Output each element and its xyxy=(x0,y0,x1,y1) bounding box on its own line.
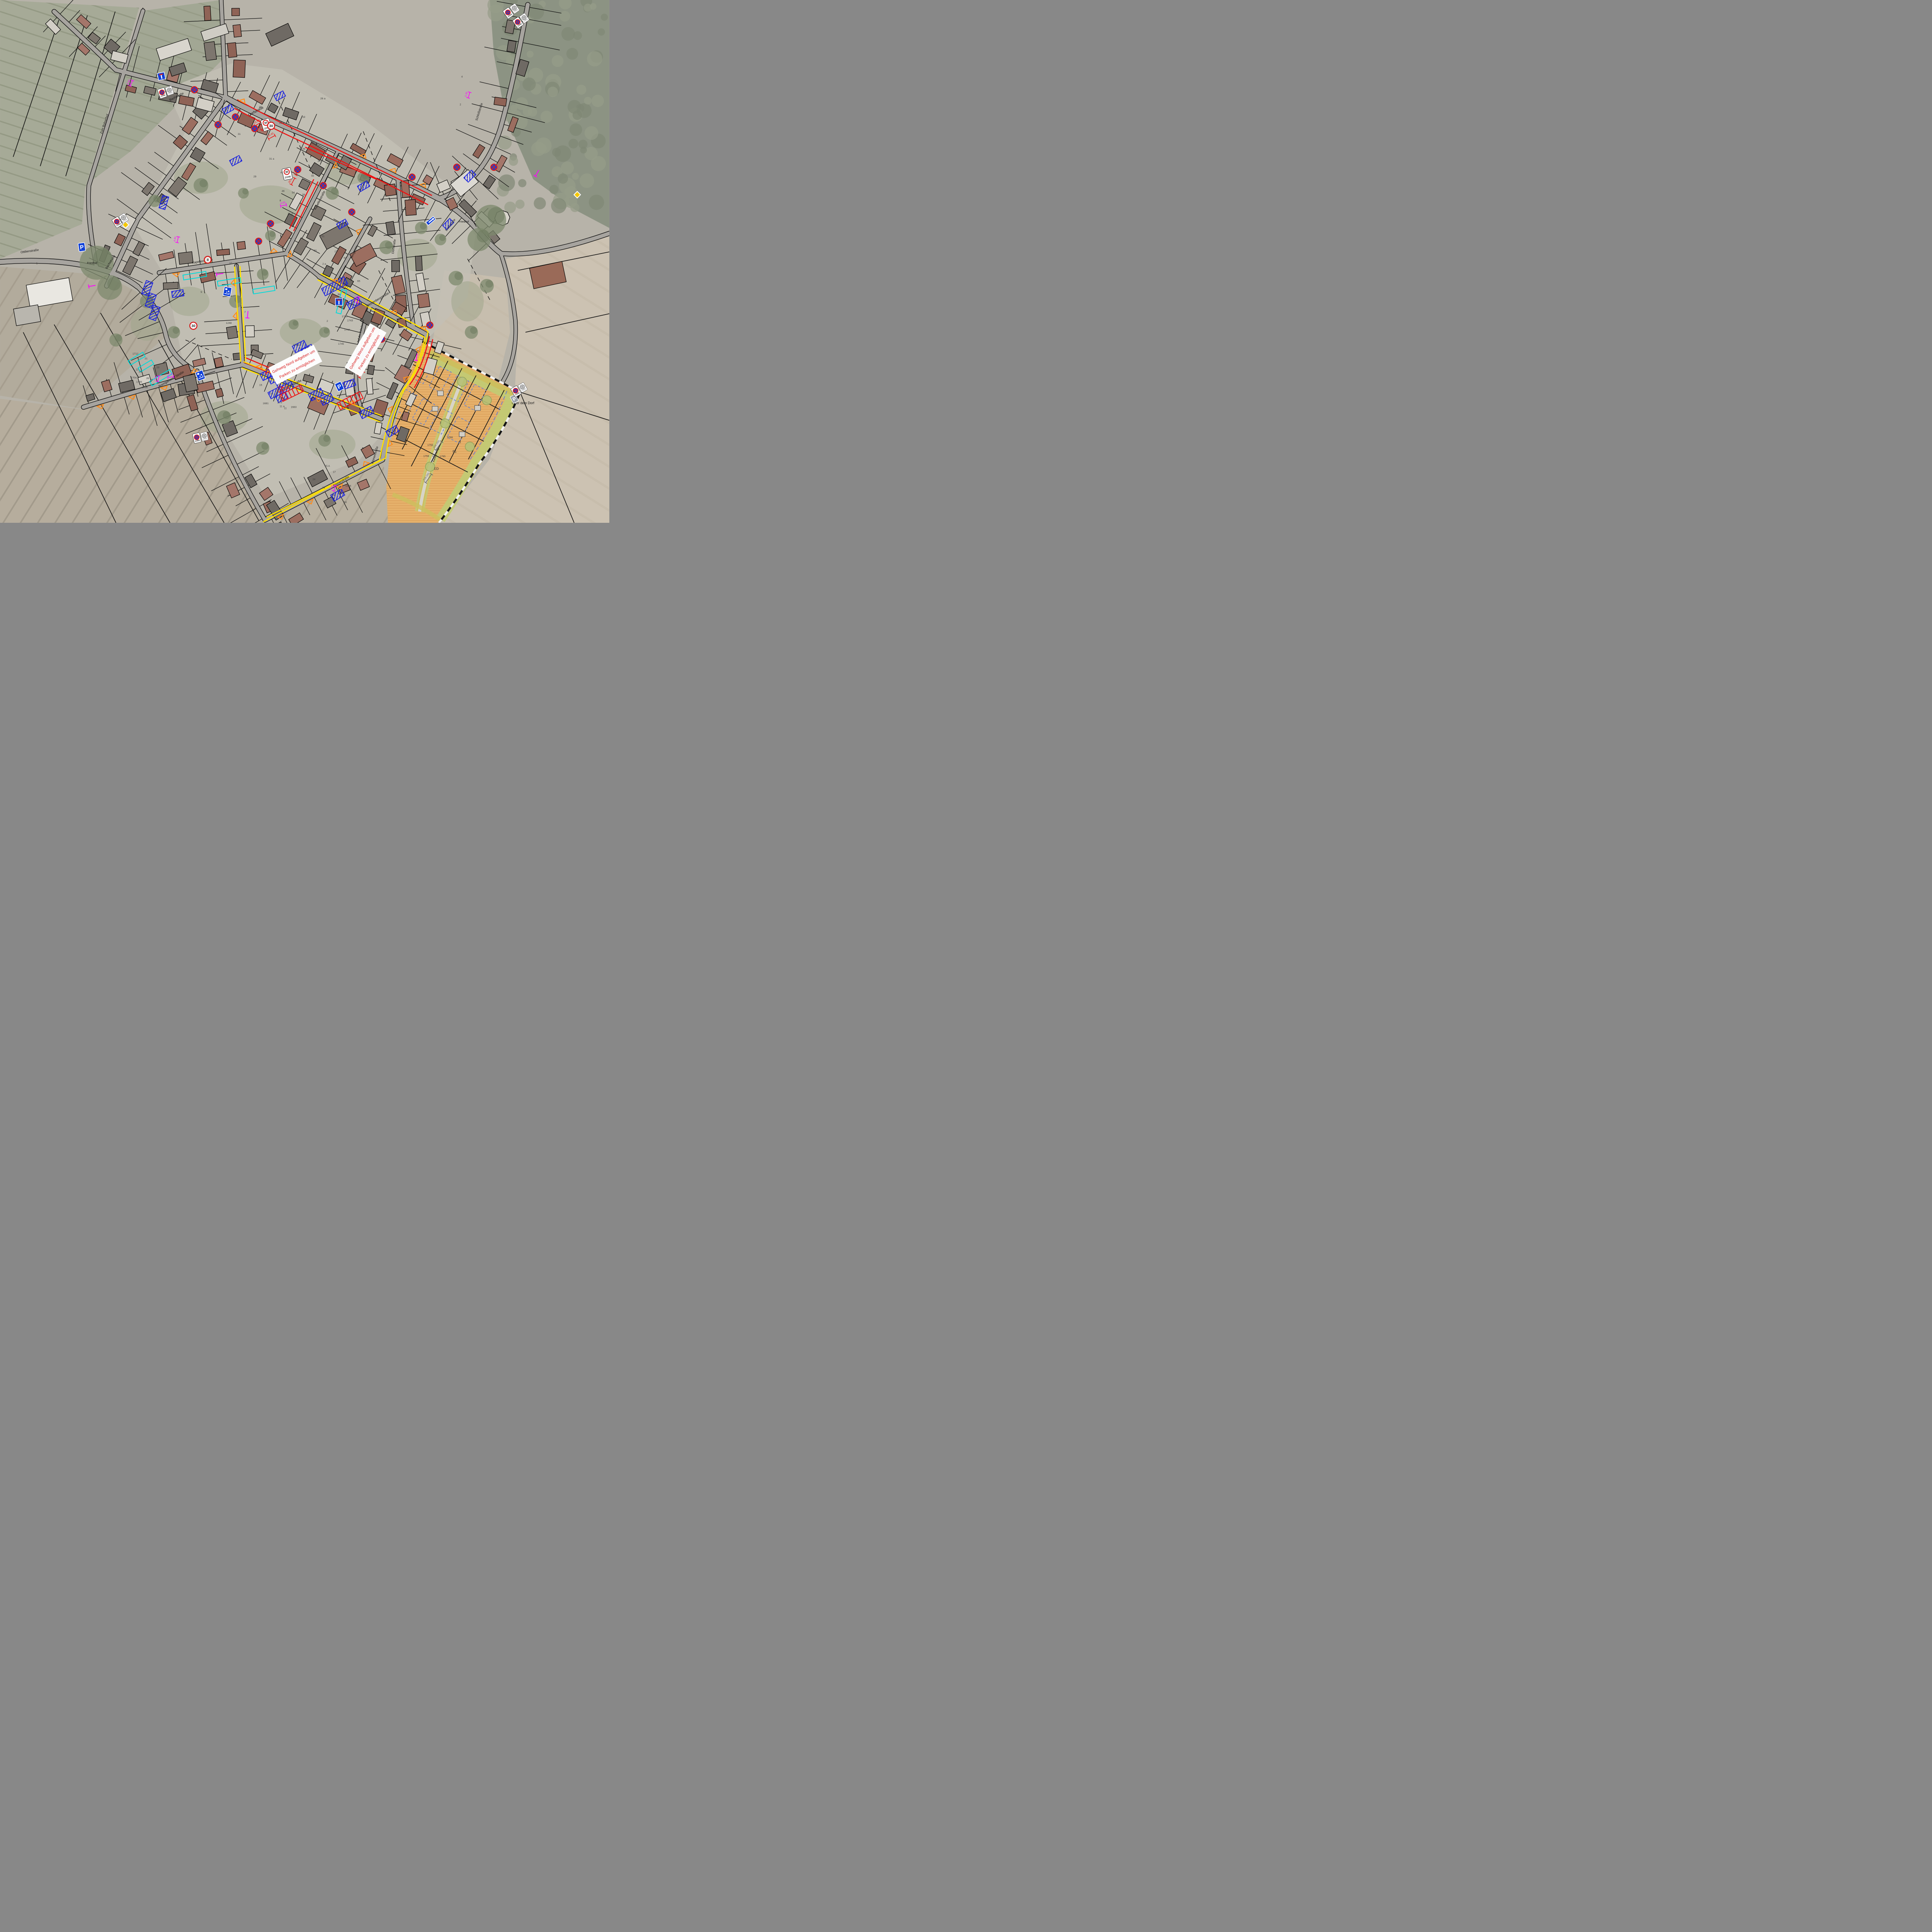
house-number: 15 A xyxy=(325,465,330,468)
house-number: 26 xyxy=(302,148,305,151)
parking-sign-icon: P xyxy=(78,243,86,252)
house-number: 1705 xyxy=(136,381,142,383)
house-number: 21 xyxy=(145,357,148,360)
house-number: 2 xyxy=(460,104,461,106)
no-stopping-sign-icon xyxy=(267,220,274,227)
house-number: 8 xyxy=(280,199,281,202)
house-number: 17 xyxy=(334,250,337,253)
house-number: 29 xyxy=(253,175,257,178)
house-number: 4 xyxy=(461,76,463,78)
house-number: 1712 xyxy=(133,352,138,355)
house-number: 11 b xyxy=(277,401,282,404)
no-stopping-sign-icon xyxy=(453,163,461,171)
house-number: 31 xyxy=(238,133,241,136)
aerial-plan-map: BachstraßeBachstraßeZum BohrerhofDorfstr… xyxy=(0,0,609,523)
house-number: 1694 xyxy=(345,485,351,487)
house-number: 26 xyxy=(322,486,325,489)
house-number: 9 xyxy=(201,291,202,294)
house-number: 19 xyxy=(302,116,305,119)
house-number: 17 xyxy=(333,471,336,473)
no-vehicles-sign-icon xyxy=(204,257,211,264)
house-number: 13 xyxy=(270,393,273,395)
no-stopping-sign-icon xyxy=(232,113,239,121)
house-number: 1683 xyxy=(291,406,296,408)
house-number: 2 a xyxy=(322,263,326,265)
house-number: 22 xyxy=(136,368,139,371)
house-number: 1766 xyxy=(447,436,453,439)
house-number: 1706 xyxy=(142,386,148,389)
speed-30-sign-icon: 30 xyxy=(190,322,197,329)
house-number: 46 xyxy=(282,190,285,192)
house-number: 1 xyxy=(340,325,341,328)
zone-label-f1: F1 xyxy=(452,449,456,453)
house-number: 3b xyxy=(337,293,340,296)
house-number: 11 xyxy=(284,407,287,410)
house-number: 65 xyxy=(357,280,361,282)
house-number: 26 xyxy=(146,377,149,380)
house-number: 27 a xyxy=(287,213,293,215)
no-stopping-sign-icon xyxy=(320,182,327,189)
house-number: 51 xyxy=(321,235,325,238)
house-number: 26 a xyxy=(320,97,325,100)
house-number: 1759 xyxy=(423,455,429,457)
house-number: 31 a xyxy=(269,158,274,160)
house-number: 24 xyxy=(313,478,316,481)
house-number: 23 xyxy=(156,366,160,369)
speed-30-sign-icon: 30 xyxy=(267,122,274,129)
house-number: 1742 xyxy=(342,315,347,318)
house-number: 64 xyxy=(344,257,347,259)
house-number: 28 a xyxy=(279,122,284,124)
house-number: 7 xyxy=(319,233,320,235)
house-number: 1745 xyxy=(338,343,344,345)
no-stopping-sign-icon xyxy=(191,86,198,94)
house-number: 1248 xyxy=(226,322,231,325)
no-stopping-sign-icon xyxy=(408,173,416,181)
house-number: 1755 xyxy=(427,444,433,447)
svg-text:30: 30 xyxy=(269,124,273,128)
house-number: 1744 xyxy=(344,328,350,331)
no-stopping-sign-icon xyxy=(255,238,262,245)
house-number: 50 xyxy=(314,250,317,252)
house-number: 13 xyxy=(432,455,435,457)
house-number: 6 xyxy=(437,414,439,417)
house-number: 1746 xyxy=(293,344,299,347)
house-number: 5 xyxy=(299,347,301,350)
house-number: 1765 xyxy=(440,455,446,458)
house-number: 55 xyxy=(311,175,314,177)
play-street-sign-icon xyxy=(223,287,232,297)
zone-label-ed: ED xyxy=(434,467,439,471)
house-number: 2 xyxy=(327,320,328,323)
house-number: 28 xyxy=(332,494,335,497)
no-stopping-sign-icon xyxy=(214,121,222,128)
no-stopping-sign-icon xyxy=(294,166,301,173)
house-number: 1704 xyxy=(131,376,137,379)
house-number: 28 xyxy=(150,379,153,381)
svg-text:30: 30 xyxy=(191,324,195,328)
no-stopping-sign-icon xyxy=(348,208,355,216)
house-number: 1681 xyxy=(263,402,269,405)
house-number: 28 xyxy=(259,106,262,109)
house-number: 3 xyxy=(440,422,441,424)
house-number: 7 xyxy=(244,311,246,314)
house-number: 1743 xyxy=(347,319,353,322)
dead-end-sign-icon xyxy=(157,72,166,80)
no-stopping-sign-icon xyxy=(251,125,259,132)
house-number: 15 xyxy=(259,384,262,386)
house-number: 5 xyxy=(349,303,350,306)
map-viewport[interactable]: BachstraßeBachstraßeZum BohrerhofDorfstr… xyxy=(0,0,609,523)
no-stopping-sign-icon xyxy=(426,321,434,329)
street-label-friedhof: Friedhof xyxy=(87,261,97,265)
house-number: 24 xyxy=(318,160,321,163)
house-number: 58 xyxy=(302,194,305,196)
street-label-friedhof: Friedhof xyxy=(459,220,469,223)
house-number: 1 xyxy=(36,262,38,265)
no-stopping-sign-icon xyxy=(490,163,498,171)
house-number: 11 a xyxy=(280,405,285,408)
house-number: 1682 xyxy=(279,397,285,400)
house-number: 54 xyxy=(292,191,295,194)
house-number: 30 xyxy=(344,501,347,504)
house-number: 12 xyxy=(229,262,232,265)
dead-end-sign-icon xyxy=(335,298,342,305)
house-number: 24 xyxy=(139,371,142,373)
house-number: 13 xyxy=(458,441,461,444)
svg-text:5.15: 5.15 xyxy=(168,373,173,376)
